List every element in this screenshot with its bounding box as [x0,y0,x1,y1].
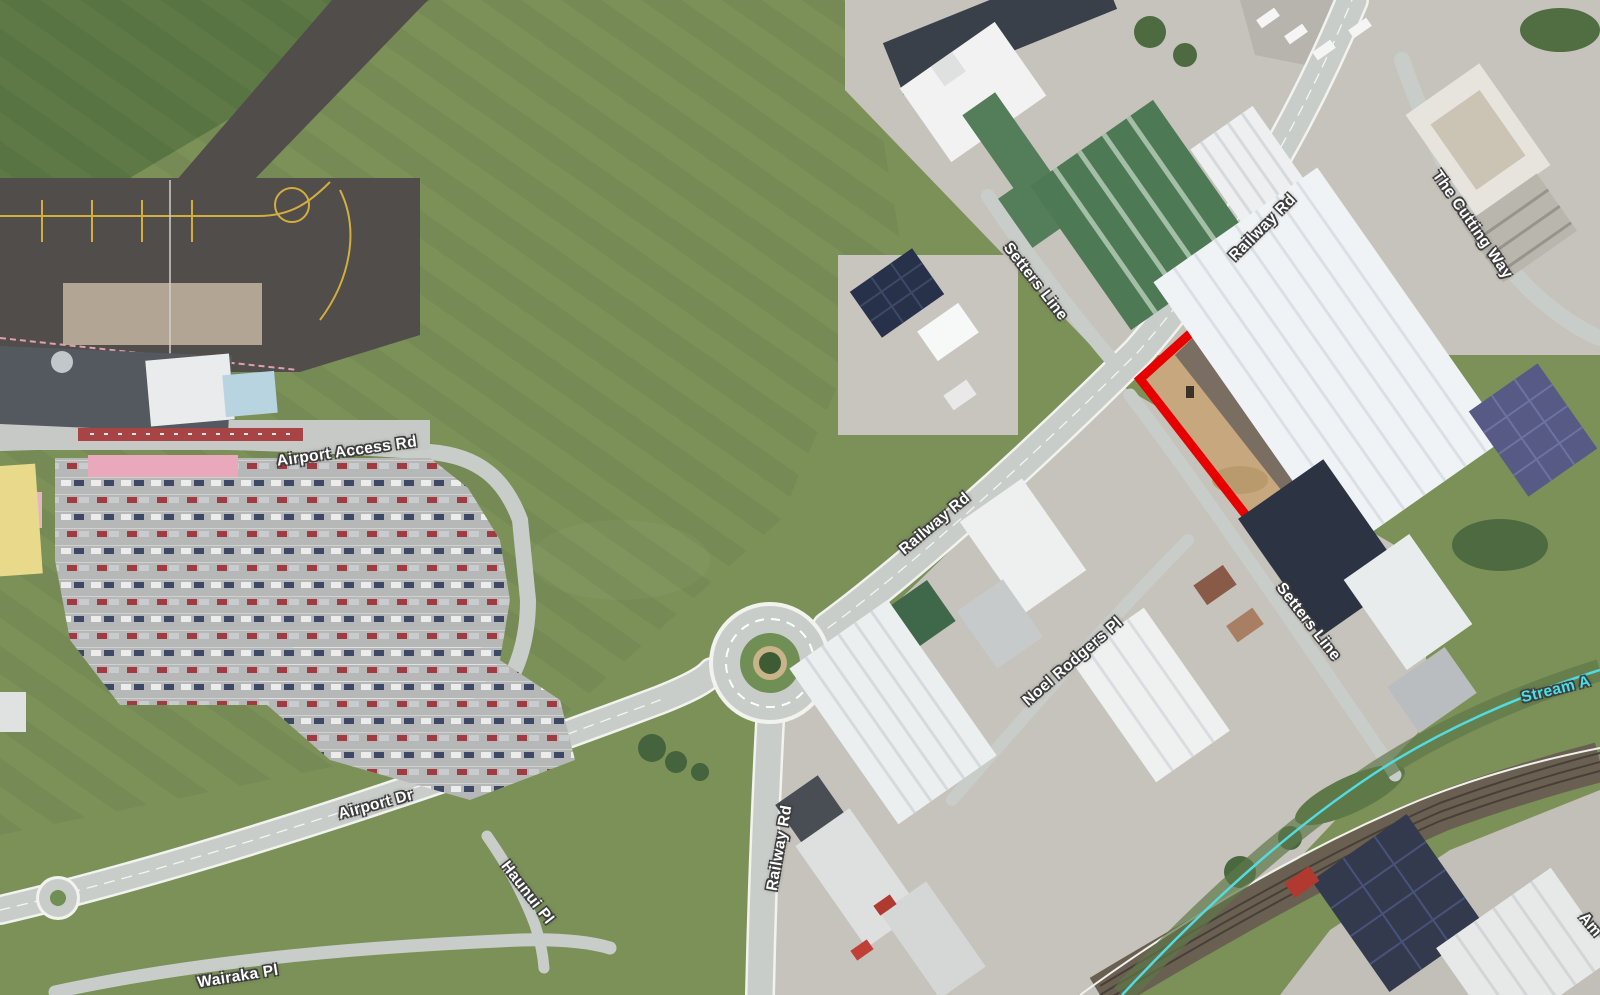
aerial-imagery [0,0,1600,995]
map-canvas[interactable]: Airport Access Rd Railway Rd Setters Lin… [0,0,1600,995]
small-roundabout [36,876,80,920]
